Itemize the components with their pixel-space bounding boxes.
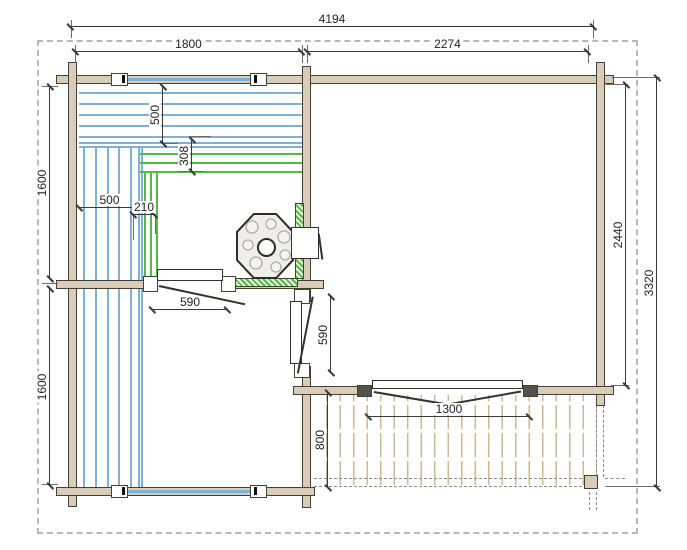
log-connector-icon (250, 73, 267, 86)
dim-left-upper-height: 1600 (49, 87, 50, 278)
dim-label-bench-step-depth: 308 (178, 143, 190, 167)
terrace-corner-hidden-line (596, 492, 597, 510)
dim-bench-step-width: 210 (133, 214, 155, 215)
dim-terrace-depth: 800 (327, 393, 328, 487)
floor-plan-drawing: 4194 1800 2274 1600 1600 2440 3320 500 3… (0, 0, 687, 550)
bench-side-board (107, 289, 109, 487)
extension-line (606, 486, 660, 487)
bench-upper-board (79, 92, 302, 94)
terrace-corner-hidden-line (589, 492, 590, 510)
dim-label-overall-height: 3320 (643, 267, 655, 298)
dim-bench-side-width: 500 (79, 207, 140, 208)
sauna-door-jamb (143, 276, 158, 292)
terrace-door-jamb (523, 385, 538, 397)
log-connector-icon (250, 485, 267, 498)
dim-label-lounge-inner-height: 2440 (612, 220, 624, 251)
terrace-side-line (596, 395, 597, 477)
terrace-corner-hidden-line (605, 478, 625, 479)
bench-side-board (95, 289, 97, 487)
bench-upper-board (79, 103, 302, 105)
bench-side-board (118, 148, 120, 280)
extension-line (133, 214, 134, 240)
terrace-side-line (603, 395, 604, 477)
terrace-edge-line (314, 486, 597, 487)
bench-side-board (83, 289, 85, 487)
dim-bench-top-depth: 500 (162, 87, 163, 143)
window-top-glazing (128, 78, 251, 81)
dim-sauna-door-width: 590 (152, 309, 228, 310)
sauna-heater-icon (236, 213, 294, 279)
step-board (140, 171, 302, 173)
bench-side-board (83, 148, 85, 280)
wall-lounge-bottom-right (534, 386, 614, 395)
bench-upper-board (79, 125, 302, 127)
dim-label-terrace-door-width: 1300 (434, 403, 465, 415)
log-connector-icon (111, 73, 128, 86)
dim-overall-width: 4194 (70, 26, 594, 27)
heater-firebox (291, 227, 319, 259)
dim-label-lounge-width: 2274 (432, 38, 463, 50)
terrace-edge-line (314, 478, 597, 479)
window-bottom-glazing (128, 490, 251, 493)
step-board (150, 173, 152, 280)
step-board (156, 173, 158, 280)
wall-partition-horizontal-left (56, 280, 151, 289)
sauna-door-jamb (221, 276, 236, 292)
room-door-jamb (294, 363, 310, 378)
dim-room-door-width: 590 (330, 297, 331, 372)
dim-label-room-door-width: 590 (317, 322, 329, 346)
dim-left-lower-height: 1600 (49, 289, 50, 485)
bench-side-board (107, 148, 109, 280)
bench-side-board (130, 289, 132, 487)
terrace-door-jamb (357, 385, 372, 397)
sauna-door-leaf (157, 269, 223, 281)
dim-label-left-lower-height: 1600 (36, 372, 48, 403)
heater-guard-rail (234, 278, 298, 287)
extension-line (191, 136, 211, 137)
bench-side-board (95, 148, 97, 280)
dim-bench-step-depth: 308 (191, 140, 192, 171)
log-connector-icon (111, 485, 128, 498)
dim-sauna-width: 1800 (75, 51, 302, 52)
heater-guard-rail (295, 203, 304, 230)
terrace-door-frame (372, 380, 523, 389)
dim-label-sauna-door-width: 590 (178, 296, 202, 308)
dim-label-sauna-width: 1800 (173, 38, 204, 50)
dim-lounge-width: 2274 (307, 51, 588, 52)
dim-label-terrace-depth: 800 (314, 428, 326, 452)
heater-chimney (257, 238, 276, 257)
extension-line (42, 283, 58, 284)
extension-line (612, 77, 660, 78)
bench-side-edge (141, 289, 143, 487)
step-board (140, 162, 302, 164)
bench-side-board (118, 289, 120, 487)
dim-label-bench-side-width: 500 (97, 194, 121, 206)
dim-label-bench-top-depth: 500 (149, 103, 161, 127)
bench-upper-board (79, 114, 302, 116)
dim-overall-height: 3320 (656, 78, 657, 487)
dim-terrace-door-width: 1300 (368, 416, 530, 417)
wall-right (596, 62, 605, 406)
dim-label-bench-step-width: 210 (132, 201, 156, 213)
dim-lounge-inner-height: 2440 (625, 85, 626, 385)
bench-side-edge (138, 289, 140, 487)
step-board (140, 153, 302, 155)
step-board (144, 173, 146, 280)
dim-label-overall-width: 4194 (317, 13, 348, 25)
terrace-corner-post (584, 475, 598, 489)
dim-label-left-upper-height: 1600 (36, 167, 48, 198)
